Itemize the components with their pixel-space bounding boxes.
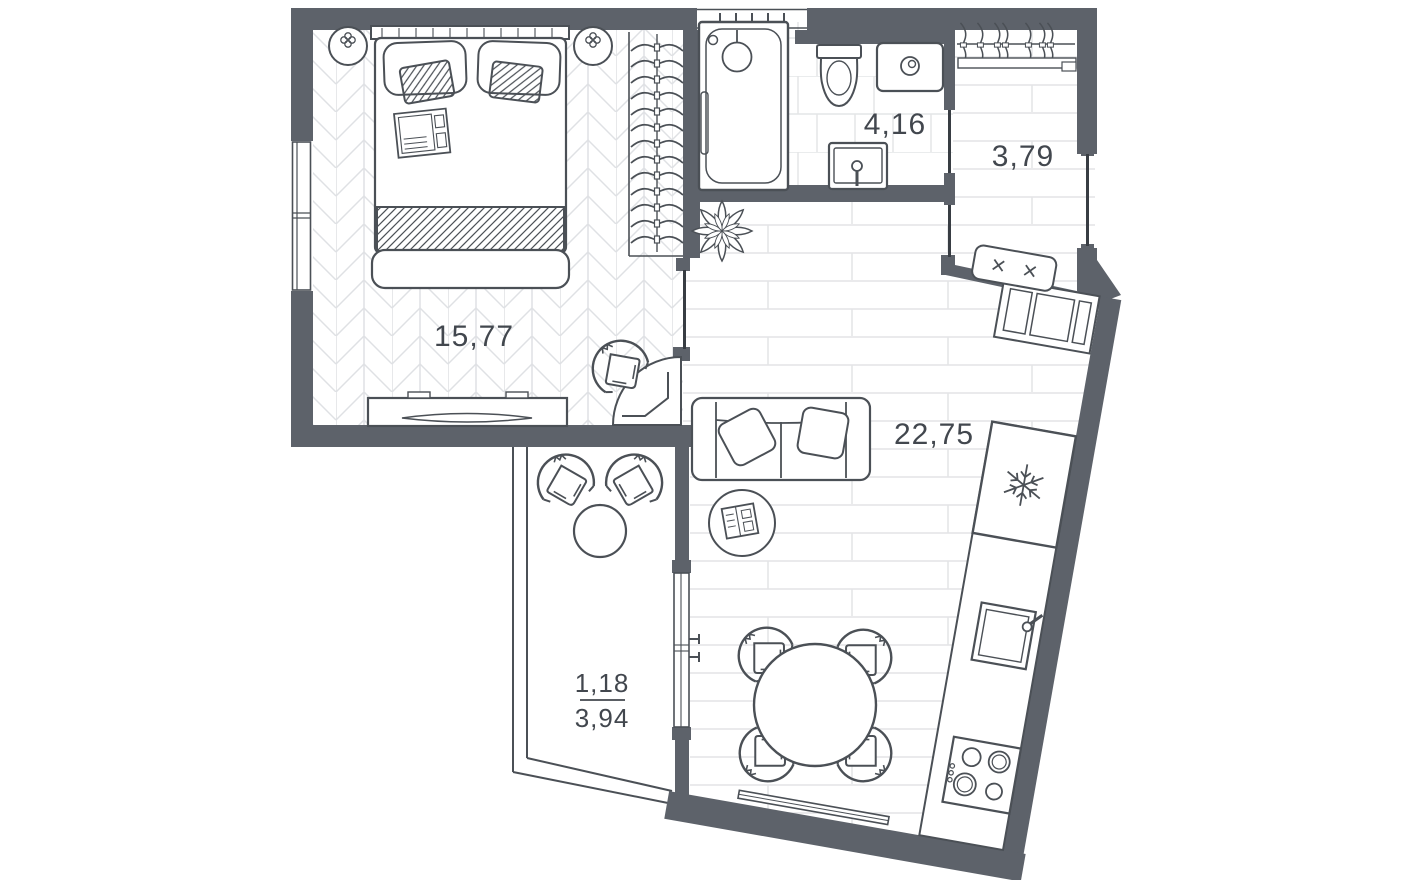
bathtub: [699, 22, 788, 190]
balcony-table: [574, 505, 626, 557]
dining-table: [754, 644, 876, 766]
fridge: [973, 422, 1076, 548]
floor-plan-page: 15,77 4,16 3,79 22,75 1,18 3,94: [0, 0, 1416, 880]
blanket: [377, 207, 564, 251]
balcony-reduced-area-label: 1,18: [575, 668, 630, 698]
living-area-label: 22,75: [894, 418, 974, 451]
balcony-full-area-label: 3,94: [575, 703, 630, 733]
breakfast-tray: [394, 109, 450, 158]
bed-foot: [372, 250, 569, 288]
faucet-icon: [852, 161, 862, 171]
tv-dresser: [368, 392, 567, 426]
bedroom-window: [291, 141, 313, 291]
bed: [371, 26, 569, 288]
washing-machine: [877, 43, 943, 91]
hallway-area-label: 3,79: [992, 140, 1054, 173]
bathroom-area-label: 4,16: [864, 108, 926, 141]
accent-pillow: [489, 61, 543, 103]
floor-plan-svg: 15,77 4,16 3,79 22,75 1,18 3,94: [0, 0, 1416, 880]
plant-icon: [692, 201, 752, 261]
stove: [942, 737, 1020, 814]
accent-pillow: [399, 60, 454, 104]
sofa: [692, 398, 870, 480]
sofa-pillow: [796, 406, 849, 459]
bedroom-area-label: 15,77: [434, 320, 514, 353]
balcony-floor: [506, 447, 690, 803]
bathroom-sink: [829, 143, 887, 189]
shower-head-icon: [723, 43, 752, 72]
magazine-icon: [722, 503, 759, 538]
coffee-table: [709, 490, 775, 556]
shoe-shelf: [958, 58, 1076, 68]
